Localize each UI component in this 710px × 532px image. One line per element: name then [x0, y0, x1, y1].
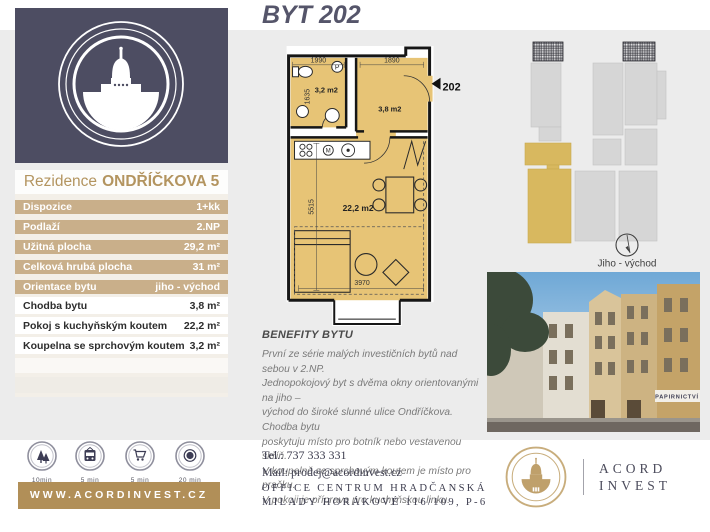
table-row: Koupelna se sprchovým koutem 3,2 m² — [15, 337, 228, 354]
row-label: Pokoj s kuchyňským koutem — [23, 320, 167, 332]
svg-text:3,2 m2: 3,2 m2 — [315, 86, 338, 95]
row-value: 29,2 m² — [184, 241, 220, 253]
page-title: BYT 202 — [262, 1, 361, 30]
siteplan-courtyards — [533, 42, 655, 61]
siteplan-highlighted-unit — [525, 143, 571, 243]
contact-block: Tel.: 737 333 331 Mail: prodej@acordinve… — [262, 448, 487, 508]
washer-symbol: P — [335, 64, 340, 71]
website-link[interactable]: WWW.ACORDINVEST.CZ — [18, 482, 220, 509]
table-row: Chodba bytu 3,8 m² — [15, 297, 228, 314]
row-label: Dispozice — [23, 201, 72, 213]
brand-dome-emblem-icon — [505, 446, 567, 508]
shop-sign-label: PAPIRNICTVÍ — [655, 393, 699, 401]
cart-icon — [125, 441, 155, 471]
row-value: 3,2 m² — [190, 340, 220, 352]
site-plan: Jiho - východ — [495, 33, 700, 268]
table-row: Orientace bytu jiho - východ — [15, 280, 228, 294]
table-row: Pokoj s kuchyňským koutem 22,2 m² — [15, 317, 228, 334]
row-label: Orientace bytu — [23, 281, 97, 293]
brand-name-line2: INVEST — [599, 477, 671, 494]
compass-icon — [616, 234, 638, 256]
empty-table-row — [15, 377, 228, 393]
row-label: Chodba bytu — [23, 300, 87, 312]
poi-tram: 5 min — [68, 441, 112, 484]
floorplan: 202 P M — [278, 40, 462, 330]
svg-text:3970: 3970 — [354, 280, 370, 287]
residence-title-regular: Rezidence — [24, 173, 97, 191]
table-row: Celková hrubá plocha 31 m² — [15, 260, 228, 274]
residence-title-bold: ONDŘÍČKOVA 5 — [102, 173, 219, 191]
row-value: jiho - východ — [155, 281, 220, 293]
contact-phone[interactable]: Tel.: 737 333 331 — [262, 448, 487, 463]
metro-icon — [175, 441, 205, 471]
empty-table-row — [15, 358, 228, 373]
row-value: 2.NP — [197, 221, 220, 233]
contact-address-line2: MILADY HORÁKOVÉ 116/109, P-6 — [262, 497, 487, 508]
svg-text:22,2 m2: 22,2 m2 — [343, 203, 374, 213]
contact-address-line1: OFFICE CENTRUM HRADČANSKÁ — [262, 483, 487, 494]
poi-shopping: 5 min — [118, 441, 162, 484]
row-value: 3,8 m² — [190, 300, 220, 312]
row-label: Koupelna se sprchovým koutem — [23, 340, 185, 352]
poi-park: 10min — [20, 441, 64, 484]
table-row: Dispozice 1+kk — [15, 200, 228, 214]
table-row: Užitná plocha 29,2 m² — [15, 240, 228, 254]
svg-text:1890: 1890 — [384, 57, 400, 64]
residence-title: Rezidence ONDŘÍČKOVA 5 — [15, 170, 228, 194]
brand-logo: ACORD INVEST — [505, 446, 671, 508]
dome-emblem-icon — [15, 8, 228, 163]
flyer-page: Rezidence ONDŘÍČKOVA 5 Dispozice 1+kk Po… — [0, 0, 710, 532]
kitchen-counter — [295, 141, 370, 159]
poi-metro: 20 min — [168, 441, 212, 484]
benefits-heading: BENEFITY BYTU — [262, 329, 482, 341]
unit-number-label: 202 — [443, 82, 461, 94]
tram-icon — [75, 441, 105, 471]
brand-name-line1: ACORD — [599, 460, 671, 477]
svg-text:5515: 5515 — [308, 199, 315, 215]
brand-divider — [583, 459, 584, 495]
svg-text:3,8 m2: 3,8 m2 — [378, 105, 401, 114]
row-value: 1+kk — [196, 201, 220, 213]
contact-email[interactable]: Mail: prodej@acordinvest.cz — [262, 465, 487, 480]
row-value: 31 m² — [193, 261, 220, 273]
building-photo: PAPIRNICTVÍ — [487, 272, 700, 432]
row-label: Celková hrubá plocha — [23, 261, 132, 273]
table-row: Podlaží 2.NP — [15, 220, 228, 234]
row-label: Užitná plocha — [23, 241, 91, 253]
trees-icon — [27, 441, 57, 471]
row-label: Podlaží — [23, 221, 60, 233]
orientation-label: Jiho - východ — [598, 259, 657, 269]
svg-text:1990: 1990 — [311, 57, 327, 64]
row-value: 22,2 m² — [184, 320, 220, 332]
svg-text:1635: 1635 — [304, 89, 311, 105]
residence-logo — [15, 8, 228, 163]
microwave-symbol: M — [326, 149, 331, 155]
residence-spec-table: Rezidence ONDŘÍČKOVA 5 Dispozice 1+kk Po… — [15, 170, 228, 397]
